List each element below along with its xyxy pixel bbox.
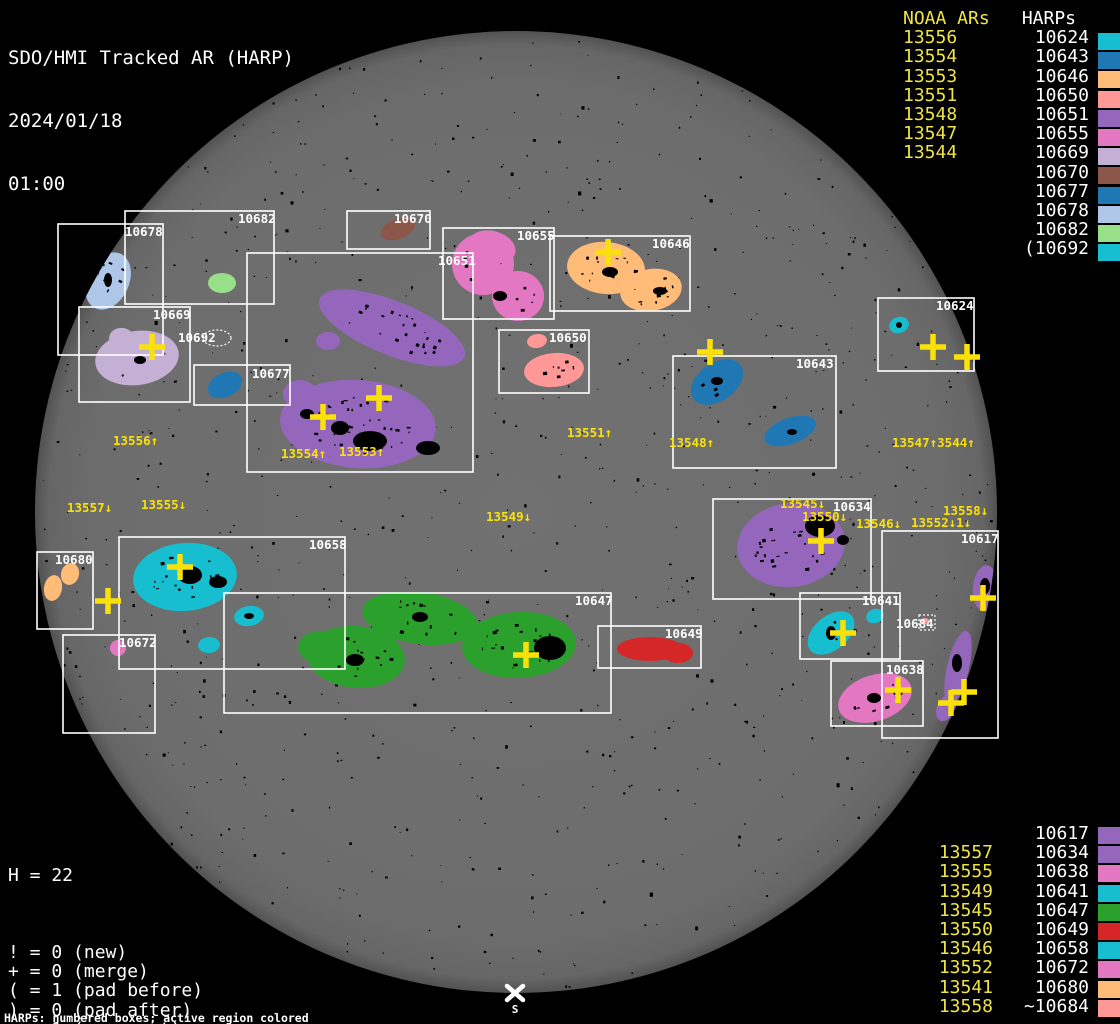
legend-harp-number: 10682 bbox=[1008, 220, 1089, 239]
legend-harp-number: 10647 bbox=[1003, 901, 1089, 920]
legend-noaa-number: 13557 bbox=[903, 843, 993, 862]
noaa-ars-header: NOAA ARs bbox=[903, 9, 1009, 28]
harp-box-label-10647: 10647 bbox=[575, 593, 613, 608]
noaa-label: 13552↓1↓ bbox=[911, 515, 971, 530]
harp-box-label-10658: 10658 bbox=[309, 537, 347, 552]
flag-count-line: + = 0 (merge) bbox=[8, 962, 214, 981]
legend-noaa-number: 13556 bbox=[903, 28, 1009, 47]
harp-color-swatch bbox=[1098, 225, 1120, 242]
legend-noaa-number: 13546 bbox=[903, 939, 993, 958]
harp-color-swatch bbox=[1098, 33, 1120, 50]
harp-box-label-10684: 10684 bbox=[896, 616, 934, 631]
legend-harp-number: 10649 bbox=[1003, 920, 1089, 939]
plot-date: 2024/01/18 bbox=[8, 111, 294, 132]
harp-box-label-10650: 10650 bbox=[549, 330, 587, 345]
harp-color-swatch bbox=[1098, 942, 1120, 959]
legend-noaa-number: 13558 bbox=[903, 997, 993, 1016]
harp-color-swatch bbox=[1098, 827, 1120, 844]
flag-count-line: ! = 0 (new) bbox=[8, 943, 214, 962]
harp-color-swatch bbox=[1098, 187, 1120, 204]
footer-note-harps: HARPs: numbered boxes; active region col… bbox=[4, 1012, 406, 1024]
legend-noaa-number: 13549 bbox=[903, 882, 993, 901]
legend-noaa-number: 13547 bbox=[903, 124, 1009, 143]
harp-color-swatch bbox=[1098, 1000, 1120, 1017]
south-pole-marker: S bbox=[507, 986, 523, 1016]
harp-box-label-10651: 10651 bbox=[438, 253, 476, 268]
noaa-label: 13549↓ bbox=[486, 509, 531, 524]
legend-noaa-number bbox=[903, 824, 993, 843]
harp-color-swatch bbox=[1098, 961, 1120, 978]
harp-box-label-10649: 10649 bbox=[665, 626, 703, 641]
legend-noaa-number: 13541 bbox=[903, 978, 993, 997]
plot-header: SDO/HMI Tracked AR (HARP) 2024/01/18 01:… bbox=[8, 6, 294, 237]
harp-box-label-10617: 10617 bbox=[961, 531, 999, 546]
noaa-label: 13551↑ bbox=[567, 425, 612, 440]
legend-harp-number: 10624 bbox=[1008, 28, 1089, 47]
harp-box-label-10655: 10655 bbox=[517, 228, 555, 243]
legend-harp-number: 10669 bbox=[1008, 143, 1089, 162]
legend-harp-number: 10646 bbox=[1008, 67, 1089, 86]
plot-time: 01:00 bbox=[8, 174, 294, 195]
legend-harp-number: 10670 bbox=[1008, 163, 1089, 182]
harp-box-label-10641: 10641 bbox=[862, 593, 900, 608]
legend-noaa-number: 13552 bbox=[903, 958, 993, 977]
legend-bottom-color-swatches bbox=[1098, 827, 1120, 1019]
harp-box-label-10680: 10680 bbox=[55, 552, 93, 567]
legend-noaa-number: 13551 bbox=[903, 86, 1009, 105]
harp-color-swatch bbox=[1098, 52, 1120, 69]
harp-color-swatch bbox=[1098, 167, 1120, 184]
legend-noaa-number: 13555 bbox=[903, 862, 993, 881]
legend-harp-number: 10677 bbox=[1008, 182, 1089, 201]
legend-noaa-number: 13544 bbox=[903, 143, 1009, 162]
harp-box-label-10624: 10624 bbox=[936, 298, 974, 313]
legend-harp-number: 10655 bbox=[1008, 124, 1089, 143]
harp-color-swatch bbox=[1098, 981, 1120, 998]
harp-color-swatch bbox=[1098, 923, 1120, 940]
legend-harp-number: 10641 bbox=[1003, 882, 1089, 901]
legend-noaa-number: 13550 bbox=[903, 920, 993, 939]
legend-bottom-noaa-column: 1355713555135491354513550135461355213541… bbox=[903, 824, 993, 1016]
plot-title: SDO/HMI Tracked AR (HARP) bbox=[8, 48, 294, 69]
legend-harp-number: 10617 bbox=[1003, 824, 1089, 843]
legend-harp-number: 10680 bbox=[1003, 978, 1089, 997]
harp-box-label-10672: 10672 bbox=[119, 635, 157, 650]
harp-color-swatch bbox=[1098, 110, 1120, 127]
harp-tracking-plot: 1067810682106701065510646106511066910677… bbox=[0, 0, 1120, 1024]
harp-color-swatch bbox=[1098, 71, 1120, 88]
noaa-label: 13555↓ bbox=[141, 497, 186, 512]
harp-color-swatch bbox=[1098, 904, 1120, 921]
legend-harp-number: 10672 bbox=[1003, 958, 1089, 977]
harp-color-swatch bbox=[1098, 206, 1120, 223]
noaa-label: 13548↑ bbox=[669, 435, 714, 450]
legend-top-color-swatches bbox=[1098, 33, 1120, 263]
legend-harp-number: 10650 bbox=[1008, 86, 1089, 105]
legend-noaa-number: 13548 bbox=[903, 105, 1009, 124]
legend-harp-number: ~10684 bbox=[1003, 997, 1089, 1016]
harps-header: HARPs bbox=[1008, 9, 1089, 28]
harp-color-swatch bbox=[1098, 148, 1120, 165]
legend-noaa-number: 13553 bbox=[903, 67, 1009, 86]
legend-harp-number: 10634 bbox=[1003, 843, 1089, 862]
noaa-label: 13546↓ bbox=[856, 516, 901, 531]
noaa-label: 13554↑ bbox=[281, 446, 326, 461]
harp-color-swatch bbox=[1098, 885, 1120, 902]
legend-harp-number: (10692 bbox=[1008, 239, 1089, 258]
noaa-label: 13547↑3544↑ bbox=[892, 435, 975, 450]
ar-region-10682 bbox=[208, 273, 236, 293]
legend-harp-number: 10658 bbox=[1003, 939, 1089, 958]
harp-color-swatch bbox=[1098, 129, 1120, 146]
harp-box-label-10669: 10669 bbox=[153, 307, 191, 322]
harp-color-swatch bbox=[1098, 865, 1120, 882]
harp-box-label-10670: 10670 bbox=[394, 211, 432, 226]
harp-box-label-10638: 10638 bbox=[886, 662, 924, 677]
legend-noaa-number: 13554 bbox=[903, 47, 1009, 66]
footer-notes: HARPs: numbered boxes; active region col… bbox=[4, 987, 406, 1024]
south-pole-label: S bbox=[512, 1003, 519, 1016]
harp-color-swatch bbox=[1098, 244, 1120, 261]
harp-box-label-10692: 10692 bbox=[178, 330, 216, 345]
harp-box-label-10643: 10643 bbox=[796, 356, 834, 371]
harp-box-label-10677: 10677 bbox=[252, 366, 290, 381]
harp-color-swatch bbox=[1098, 91, 1120, 108]
legend-harp-number: 10678 bbox=[1008, 201, 1089, 220]
legend-noaa-number: 13545 bbox=[903, 901, 993, 920]
legend-top-harp-column: HARPs 1062410643106461065010651106551066… bbox=[1008, 9, 1089, 258]
harp-box-label-10646: 10646 bbox=[652, 236, 690, 251]
noaa-label: 13556↑ bbox=[113, 433, 158, 448]
legend-bottom-harp-column: 1061710634106381064110647106491065810672… bbox=[1003, 824, 1089, 1016]
noaa-label: 13557↓ bbox=[67, 500, 112, 515]
noaa-label: 13550↓ bbox=[802, 509, 847, 524]
legend-top-noaa-column: NOAA ARs 1355613554135531355113548135471… bbox=[903, 9, 1009, 163]
harp-color-swatch bbox=[1098, 846, 1120, 863]
harp-count: H = 22 bbox=[8, 866, 214, 885]
legend-harp-number: 10651 bbox=[1008, 105, 1089, 124]
noaa-label: 13553↑ bbox=[339, 444, 384, 459]
legend-harp-number: 10643 bbox=[1008, 47, 1089, 66]
legend-harp-number: 10638 bbox=[1003, 862, 1089, 881]
